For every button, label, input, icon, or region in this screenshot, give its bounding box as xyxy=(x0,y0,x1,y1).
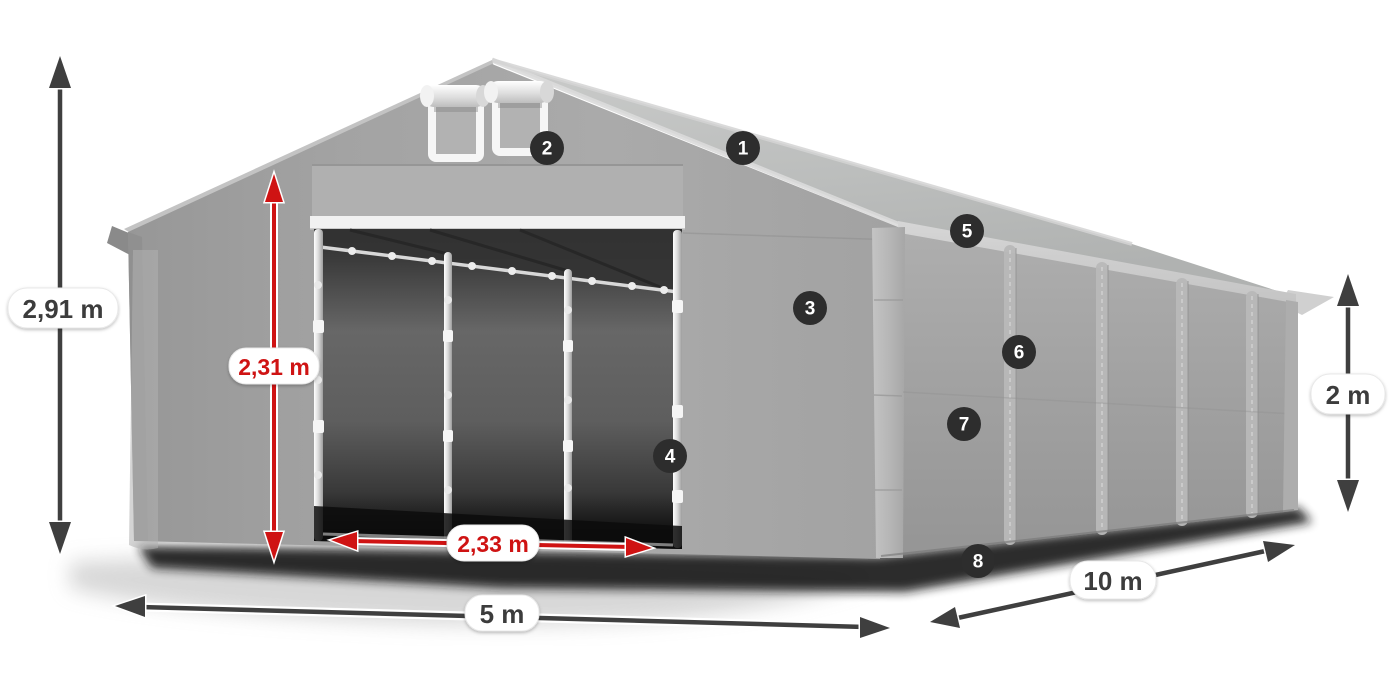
door-lintel xyxy=(310,164,685,229)
dimension-side-height: 2 m xyxy=(1311,274,1385,512)
arrowhead-right-icon xyxy=(1263,541,1295,562)
roll-cap xyxy=(420,85,434,107)
hotspot-4[interactable]: 4 xyxy=(653,439,687,473)
hotspot-7[interactable]: 7 xyxy=(947,407,981,441)
dimension-label: 5 m xyxy=(480,599,525,629)
gable-window xyxy=(420,85,490,158)
hotspot-8[interactable]: 8 xyxy=(961,544,995,578)
dimension-label: 2,33 m xyxy=(457,531,529,557)
arrowhead-up-icon xyxy=(1337,274,1359,306)
roll-cap xyxy=(540,81,554,103)
tent-illustration xyxy=(70,60,1334,625)
dimension-label: 10 m xyxy=(1083,566,1142,596)
arrowhead-up-icon xyxy=(49,56,71,88)
arrowhead-down-icon xyxy=(49,522,71,554)
diagram-canvas: 2,91 m 2,31 m 2,33 m 5 m 10 m xyxy=(0,0,1400,700)
tent-dimension-diagram: 2,91 m 2,31 m 2,33 m 5 m 10 m xyxy=(0,0,1400,700)
side-wall xyxy=(872,227,1298,558)
dimension-total-height: 2,91 m xyxy=(8,56,118,554)
front-corner-band xyxy=(129,250,158,549)
hotspot-6[interactable]: 6 xyxy=(1002,335,1036,369)
hotspot-1[interactable]: 1 xyxy=(726,131,760,165)
lintel-band xyxy=(312,164,683,217)
dimension-label: 2,31 m xyxy=(238,354,310,380)
corner-band xyxy=(872,227,905,558)
dimension-label: 2 m xyxy=(1326,380,1371,410)
hotspot-5[interactable]: 5 xyxy=(950,214,984,248)
entrance-opening xyxy=(313,229,683,549)
roll-cap xyxy=(484,81,498,103)
door-post-left xyxy=(314,229,323,541)
hotspot-3[interactable]: 3 xyxy=(793,291,827,325)
arrowhead-down-icon xyxy=(1337,480,1359,512)
hotspot-2[interactable]: 2 xyxy=(530,131,564,165)
header-beam xyxy=(310,216,685,229)
dimension-label: 2,91 m xyxy=(23,294,104,324)
arrowhead-left-icon xyxy=(930,607,960,628)
arrowhead-right-icon xyxy=(860,617,890,638)
